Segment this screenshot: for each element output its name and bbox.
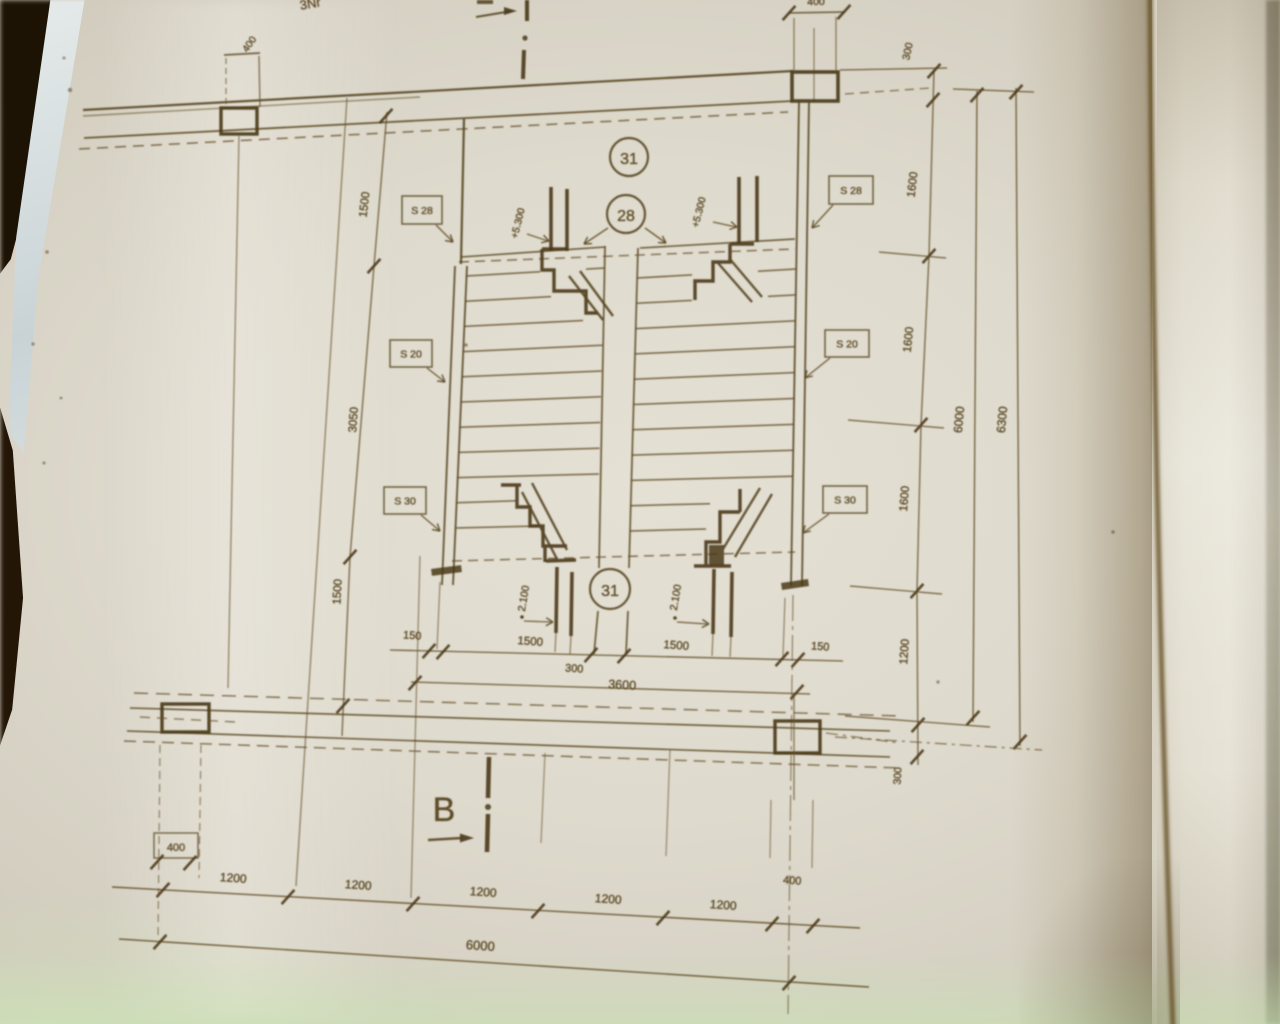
svg-text:1200: 1200 <box>594 891 622 907</box>
svg-text:300: 300 <box>892 767 905 785</box>
svg-text:150: 150 <box>811 640 830 653</box>
svg-text:1200: 1200 <box>344 877 372 893</box>
svg-text:1200: 1200 <box>469 884 497 900</box>
svg-text:6000: 6000 <box>951 405 967 433</box>
svg-text:150: 150 <box>403 629 422 642</box>
svg-text:400: 400 <box>783 874 802 887</box>
svg-text:3600: 3600 <box>608 677 637 692</box>
svg-text:31: 31 <box>620 151 638 168</box>
svg-text:300: 300 <box>900 41 915 61</box>
svg-text:6000: 6000 <box>465 937 495 954</box>
svg-text:1200: 1200 <box>709 897 737 913</box>
svg-text:S 20: S 20 <box>836 339 858 351</box>
svg-text:28: 28 <box>617 208 635 225</box>
svg-text:300: 300 <box>565 662 584 675</box>
svg-text:S 28: S 28 <box>411 205 433 217</box>
svg-text:1500: 1500 <box>517 635 543 649</box>
svg-text:31: 31 <box>601 583 619 600</box>
svg-text:S 30: S 30 <box>394 496 416 508</box>
svg-text:1200: 1200 <box>219 870 247 886</box>
svg-text:1600: 1600 <box>898 485 912 512</box>
svg-text:1600: 1600 <box>902 326 917 353</box>
svg-text:3050: 3050 <box>347 407 361 433</box>
svg-text:6300: 6300 <box>994 405 1010 433</box>
svg-text:400: 400 <box>167 842 185 854</box>
svg-text:+5.300: +5.300 <box>691 196 709 229</box>
svg-text:1500: 1500 <box>358 191 373 218</box>
svg-text:1500: 1500 <box>331 579 344 605</box>
svg-text:3Nr: 3Nr <box>299 0 323 13</box>
svg-text:S 30: S 30 <box>834 495 856 507</box>
svg-text:1500: 1500 <box>663 639 689 653</box>
svg-text:+5.300: +5.300 <box>510 207 528 240</box>
svg-text:1600: 1600 <box>906 171 921 198</box>
svg-text:2.100: 2.100 <box>516 584 532 612</box>
svg-text:2.100: 2.100 <box>668 583 684 611</box>
svg-text:B: B <box>433 791 456 829</box>
svg-text:400: 400 <box>807 0 825 8</box>
svg-text:S 28: S 28 <box>840 185 862 197</box>
svg-text:400: 400 <box>241 34 260 54</box>
svg-text:S 20: S 20 <box>400 349 422 361</box>
svg-text:1200: 1200 <box>898 639 912 665</box>
